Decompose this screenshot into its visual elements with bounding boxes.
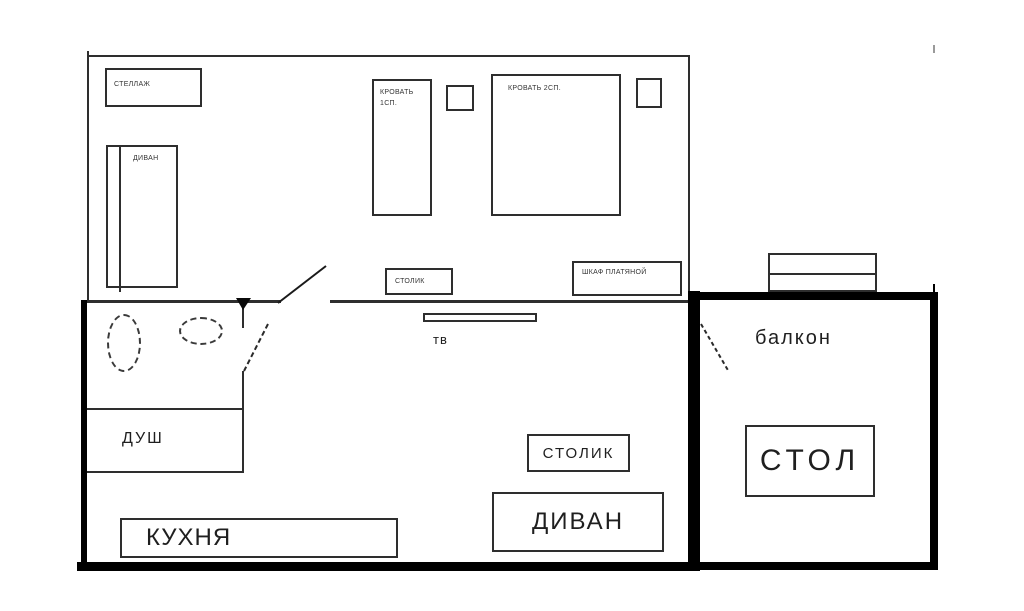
sink-ellipse: [179, 317, 223, 345]
balcony-wall-bottom: [688, 562, 938, 570]
nightstand-left: [446, 85, 474, 111]
kitchen-counter: КУХНЯ: [120, 518, 398, 558]
bedroom-sofa-label: ДИВАН: [133, 153, 158, 164]
living-wall-left: [81, 300, 87, 566]
bedroom-door-leaf: [278, 266, 326, 303]
balcony-ac-unit: [768, 253, 877, 292]
shower-divider: [87, 408, 244, 410]
shower-label: ДУШ: [122, 430, 164, 448]
tv-label: тв: [433, 332, 448, 347]
balcony-label: балкон: [755, 327, 832, 350]
shared-wall-right: [688, 291, 700, 571]
bedroom-wall-left: [87, 51, 89, 301]
balcony-door-swing: [701, 324, 729, 372]
shelf-label: СТЕЛЛАЖ: [114, 79, 150, 90]
floor-plan: ДУШ СТЕЛЛАЖ ДИВАН КРОВАТЬ 1СП. КРОВАТЬ 2…: [0, 0, 1024, 611]
shelf-unit: СТЕЛЛАЖ: [105, 68, 202, 107]
balcony-table-label: СТОЛ: [760, 444, 860, 478]
bathroom-door-swing: [244, 324, 268, 371]
coffee-table: СТОЛИК: [527, 434, 630, 472]
bedroom-sofa-backrest-line: [119, 145, 121, 292]
bedroom-wall-top: [87, 55, 690, 57]
bedroom-wall-bottom-left: [87, 300, 281, 303]
bed-double: КРОВАТЬ 2СП.: [491, 74, 621, 216]
coffee-table-label: СТОЛИК: [543, 445, 615, 462]
balcony-wall-top: [698, 292, 938, 300]
bedroom-side-table: СТОЛИК: [385, 268, 453, 295]
bed-single-label-line2: 1СП.: [380, 98, 397, 109]
bed-single-label-line1: КРОВАТЬ: [380, 87, 414, 98]
living-wall-bottom: [77, 562, 700, 571]
toilet-ellipse: [107, 314, 141, 372]
living-sofa-label: ДИВАН: [532, 508, 624, 536]
kitchen-label: КУХНЯ: [122, 524, 231, 552]
bedroom-side-table-label: СТОЛИК: [395, 276, 425, 287]
bedroom-sofa: ДИВАН: [106, 145, 178, 288]
bedroom-wall-bottom-right: [330, 300, 690, 303]
nightstand-right: [636, 78, 662, 108]
bathroom-partition-lower: [242, 371, 244, 473]
bedroom-wall-right: [688, 55, 690, 301]
balcony-wall-right: [930, 292, 938, 570]
balcony-table: СТОЛ: [745, 425, 875, 497]
tv-unit: [423, 313, 537, 322]
balcony-ac-unit-divider: [770, 273, 875, 275]
wardrobe: ШКАФ ПЛАТЯНОЙ: [572, 261, 682, 296]
living-sofa: ДИВАН: [492, 492, 664, 552]
wardrobe-label: ШКАФ ПЛАТЯНОЙ: [582, 267, 647, 278]
bathroom-partition-upper: [242, 302, 244, 328]
balcony-corner-tick: [933, 284, 935, 293]
shower-bottom: [87, 471, 244, 473]
bed-double-label: КРОВАТЬ 2СП.: [508, 83, 561, 94]
bed-single: КРОВАТЬ 1СП.: [372, 79, 432, 216]
stray-tick: [933, 45, 935, 53]
